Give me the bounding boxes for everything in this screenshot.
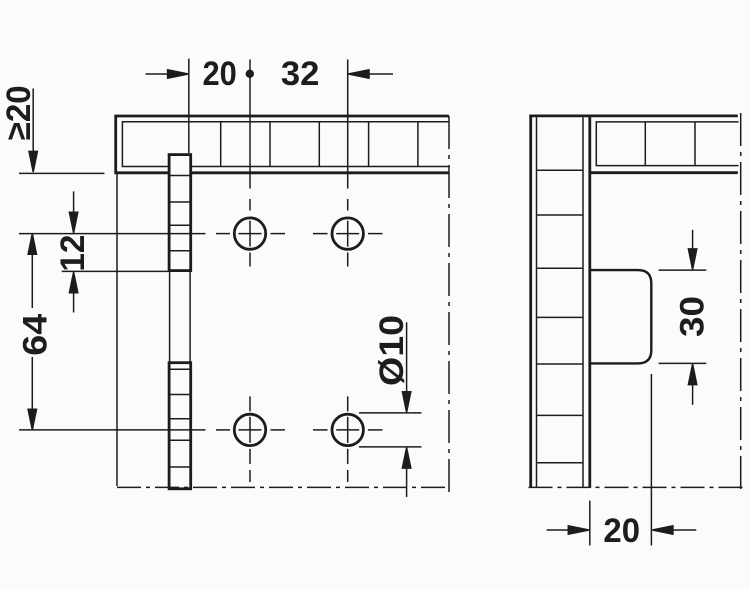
svg-text:12: 12 [54, 235, 92, 272]
svg-text:30: 30 [674, 296, 712, 337]
svg-text:Ø10: Ø10 [373, 315, 411, 386]
svg-text:32: 32 [281, 55, 320, 93]
svg-text:20: 20 [603, 512, 640, 550]
svg-text:20: 20 [202, 55, 236, 93]
svg-text:≥20: ≥20 [0, 85, 38, 140]
svg-text:64: 64 [17, 314, 55, 356]
